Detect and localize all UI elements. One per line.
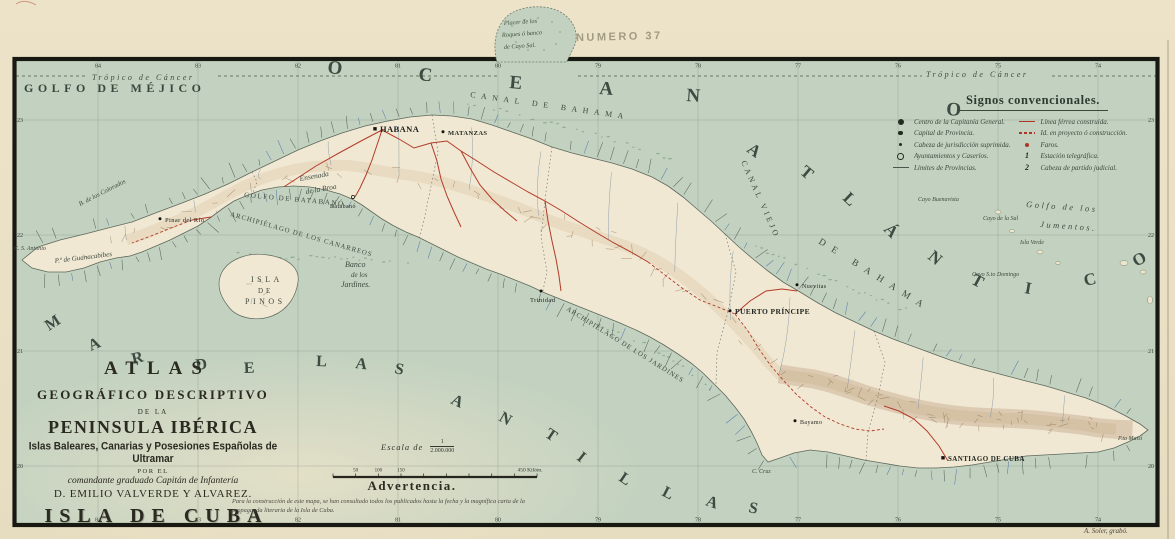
telegraph-symbol: 1 bbox=[1018, 152, 1035, 160]
grat-bottom-8: 76 bbox=[895, 518, 901, 524]
grat-top-10: 74 bbox=[1095, 64, 1101, 70]
sea-letter: A bbox=[599, 78, 614, 100]
sea-letter: N bbox=[686, 85, 701, 107]
city-label-santiago: SANTIAGO DE CUBA bbox=[948, 455, 1025, 463]
city-label-habana: HABANA bbox=[380, 124, 420, 134]
legend-label: Capital de Provincia. bbox=[914, 129, 974, 137]
advertencia-line1: Para la construcción de este mapa, se ha… bbox=[232, 498, 525, 505]
map-label-banco_3: Jardines. bbox=[341, 280, 370, 289]
islet bbox=[1140, 270, 1146, 274]
map-label-cayo_sal: Cayo de la Sal bbox=[983, 216, 1018, 222]
city-label-bayamo: Bayamo bbox=[800, 420, 822, 426]
scale-statement: Escala de 1 2.000.000 bbox=[381, 439, 454, 454]
map-sheet: OCEANOATLÁNTICOMARDELASANTILLASGOLFO DE … bbox=[0, 0, 1175, 539]
legend-label: Faros. bbox=[1040, 141, 1058, 149]
map-label-c_san_antonio: C. S. Antonio bbox=[14, 246, 46, 252]
advertencia-title: Advertencia. bbox=[232, 478, 592, 494]
scale-tick-1: 100 bbox=[375, 469, 383, 474]
margin-red-mark bbox=[16, 1, 36, 5]
atlas-porel: POR EL bbox=[22, 468, 284, 475]
label-tropico-1: Trópico de Cáncer bbox=[926, 70, 1029, 79]
grat-bottom-10: 74 bbox=[1095, 518, 1101, 524]
grat-bottom-5: 79 bbox=[595, 518, 601, 524]
legend-label: Cabeza de jurisdicción suprimida. bbox=[914, 141, 1010, 149]
map-label-pinos_1: ISLA bbox=[251, 275, 283, 284]
map-label-pinos_2: DE bbox=[258, 287, 273, 295]
advertencia-note: Advertencia. Para la construcción de est… bbox=[232, 478, 592, 516]
map-label-pinos_3: PINOS bbox=[245, 297, 286, 306]
atlas-dela: DE LA bbox=[22, 408, 284, 416]
judicial-symbol: 2 bbox=[1018, 164, 1035, 172]
legend-item-right-1: Id. en proyecto ó construcción. bbox=[1018, 130, 1127, 137]
legend-column-left: Centro de la Capitanía General.Capital d… bbox=[892, 118, 1010, 171]
map-label-banco_2: de los bbox=[351, 271, 368, 279]
dot-small-symbol bbox=[892, 143, 909, 146]
islet bbox=[1037, 250, 1043, 254]
city-label-trinidad: Trinidad bbox=[530, 297, 556, 304]
map-label-pta_maisi: P.ta Maisí bbox=[1117, 436, 1144, 442]
label-tropico-0: Trópico de Cáncer bbox=[92, 73, 195, 82]
grat-right-2: 21 bbox=[1148, 349, 1154, 355]
scale-fraction: 1 2.000.000 bbox=[430, 439, 454, 454]
scale-tick-2: 150 bbox=[397, 469, 405, 474]
city-label-matanzas: MATANZAS bbox=[448, 130, 487, 137]
city-label-pinar: Pinar del Río bbox=[165, 217, 205, 224]
city-symbol-santiago bbox=[941, 456, 944, 459]
atlas-peninsula: PENINSULA IBÉRICA bbox=[22, 417, 284, 438]
grat-bottom-7: 77 bbox=[795, 518, 801, 524]
dot-medium-symbol bbox=[892, 131, 909, 136]
grat-top-8: 76 bbox=[895, 64, 901, 70]
legend-item-left-0: Centro de la Capitanía General. bbox=[892, 118, 1010, 125]
city-symbol-matanzas bbox=[442, 130, 445, 133]
city-label-batabano: Batabanó bbox=[330, 204, 356, 210]
scale-numerator: 1 bbox=[430, 439, 454, 446]
red-dashed-symbol bbox=[1018, 132, 1035, 134]
city-symbol-trinidad bbox=[540, 290, 543, 293]
atlas-title: ATLAS bbox=[22, 358, 284, 380]
legend-item-right-0: Línea férrea construida. bbox=[1018, 118, 1127, 125]
islet bbox=[1148, 296, 1153, 304]
legend-item-left-1: Capital de Provincia. bbox=[892, 130, 1010, 137]
scale-denominator: 2.000.000 bbox=[430, 446, 454, 455]
dot-large-symbol bbox=[892, 119, 909, 125]
grat-top-5: 79 bbox=[595, 64, 601, 70]
legend-item-left-4: Límites de Provincias. bbox=[892, 164, 1010, 171]
islet bbox=[1056, 262, 1060, 265]
grat-top-2: 82 bbox=[295, 64, 301, 70]
map-label-cayo_buenavista: Cayo Buenavista bbox=[918, 197, 959, 203]
advertencia-line2: propaganda literaria de la Isla de Cuba. bbox=[232, 507, 334, 514]
grat-right-3: 20 bbox=[1148, 464, 1154, 470]
map-label-isla_verde: Isla Verde bbox=[1019, 240, 1044, 246]
grat-top-7: 77 bbox=[795, 64, 801, 70]
city-label-pprincipe: PUERTO PRÍNCIPE bbox=[735, 306, 810, 316]
grat-bottom-6: 78 bbox=[695, 518, 701, 524]
grat-top-3: 81 bbox=[395, 64, 401, 70]
legend-label: Id. en proyecto ó construcción. bbox=[1040, 129, 1127, 137]
line-thin-symbol bbox=[892, 167, 909, 168]
legend-label: Estación telegráfica. bbox=[1040, 152, 1098, 160]
grat-top-4: 80 bbox=[495, 64, 501, 70]
label-golfo-de-mejico: GOLFO DE MÉJICO bbox=[24, 81, 206, 95]
engraver-credit: A. Soler, grabó. bbox=[1084, 527, 1128, 535]
circle-open-symbol bbox=[892, 153, 909, 160]
city-symbol-pinar bbox=[159, 217, 162, 220]
atlas-islas: Islas Baleares, Canarias y Posesiones Es… bbox=[22, 441, 284, 465]
grat-bottom-3: 81 bbox=[395, 518, 401, 524]
legend-column-right: Línea férrea construida.Id. en proyecto … bbox=[1018, 118, 1127, 171]
advertencia-body: Para la construcción de este mapa, se ha… bbox=[232, 497, 592, 516]
legend: Signos convencionales. Centro de la Capi… bbox=[882, 93, 1175, 171]
legend-label: Línea férrea construida. bbox=[1040, 118, 1108, 126]
legend-item-right-4: 2Cabeza de partido judicial. bbox=[1018, 164, 1127, 171]
grat-right-1: 22 bbox=[1148, 233, 1154, 239]
legend-item-left-3: Ayuntamientos y Caseríos. bbox=[892, 153, 1010, 160]
map-label-cayo_domingo: Cayo S.to Domingo bbox=[972, 272, 1019, 278]
city-symbol-bayamo bbox=[794, 419, 797, 422]
red-line-symbol bbox=[1018, 121, 1035, 123]
legend-label: Límites de Provincias. bbox=[914, 164, 977, 172]
grat-top-9: 75 bbox=[995, 64, 1001, 70]
map-label-cabo_cruz: C. Cruz bbox=[752, 469, 771, 475]
scale-tick-0: 50 bbox=[353, 469, 359, 474]
grat-top-6: 78 bbox=[695, 64, 701, 70]
map-label-banco_1: Banco bbox=[345, 260, 365, 269]
city-label-nuevitas: Nuevitas bbox=[802, 284, 827, 290]
sea-letter: E bbox=[509, 72, 523, 94]
city-symbol-habana bbox=[373, 127, 376, 130]
legend-item-right-2: Faros. bbox=[1018, 141, 1127, 148]
legend-label: Cabeza de partido judicial. bbox=[1040, 164, 1117, 172]
city-symbol-pprincipe bbox=[729, 309, 732, 312]
legend-label: Ayuntamientos y Caseríos. bbox=[914, 152, 988, 160]
grat-left-2: 21 bbox=[17, 349, 23, 355]
atlas-subtitle: GEOGRÁFICO DESCRIPTIVO bbox=[22, 387, 284, 403]
grat-bottom-9: 75 bbox=[995, 518, 1001, 524]
red-dot-symbol bbox=[1018, 143, 1035, 147]
legend-title: Signos convencionales. bbox=[928, 93, 1138, 108]
grat-left-1: 22 bbox=[17, 233, 23, 239]
city-symbol-nuevitas bbox=[796, 283, 799, 286]
grat-bottom-2: 82 bbox=[295, 518, 301, 524]
grat-top-1: 83 bbox=[195, 64, 201, 70]
islet bbox=[995, 210, 1001, 214]
sea-letter: O bbox=[326, 57, 343, 79]
islet bbox=[1120, 261, 1128, 266]
sea-letter: C bbox=[417, 64, 433, 86]
islet bbox=[1010, 229, 1015, 233]
legend-item-right-3: 1Estación telegráfica. bbox=[1018, 153, 1127, 160]
grat-left-0: 23 bbox=[17, 118, 23, 124]
sea-letter: L bbox=[316, 353, 327, 370]
grat-top-0: 84 bbox=[95, 64, 101, 70]
scale-prefix: Escala de bbox=[381, 442, 423, 452]
grat-bottom-4: 80 bbox=[495, 518, 501, 524]
legend-item-left-2: Cabeza de jurisdicción suprimida. bbox=[892, 141, 1010, 148]
plate-number-stamp: NUMERO 37 bbox=[576, 30, 663, 44]
legend-label: Centro de la Capitanía General. bbox=[914, 118, 1005, 126]
scale-end-label: 450 Kilóm. bbox=[517, 468, 543, 474]
